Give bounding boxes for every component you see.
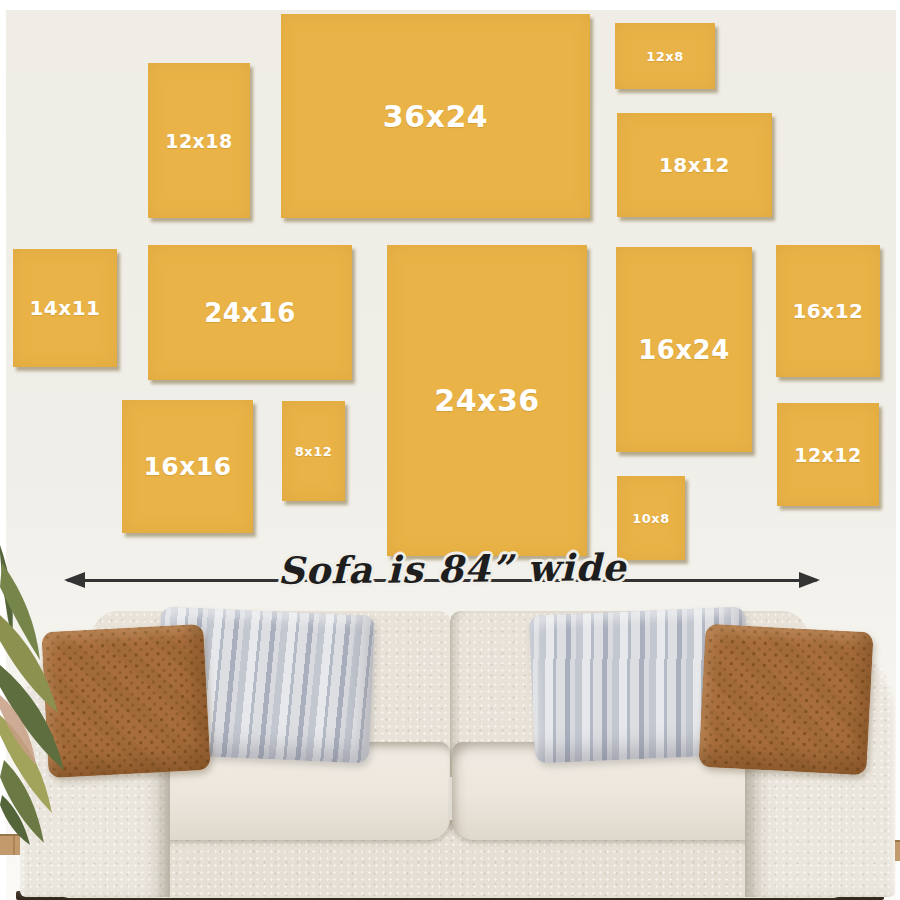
- pillow-rust-right: [698, 624, 873, 776]
- size-guide-image: 12x1836x2412x818x1214x1124x1624x3616x241…: [0, 0, 900, 900]
- dimension-caption: Sofa is 84” wide: [277, 549, 626, 590]
- sofa: [0, 0, 900, 900]
- plant-leaves: [0, 545, 92, 845]
- arrowhead-right-icon: [799, 572, 820, 588]
